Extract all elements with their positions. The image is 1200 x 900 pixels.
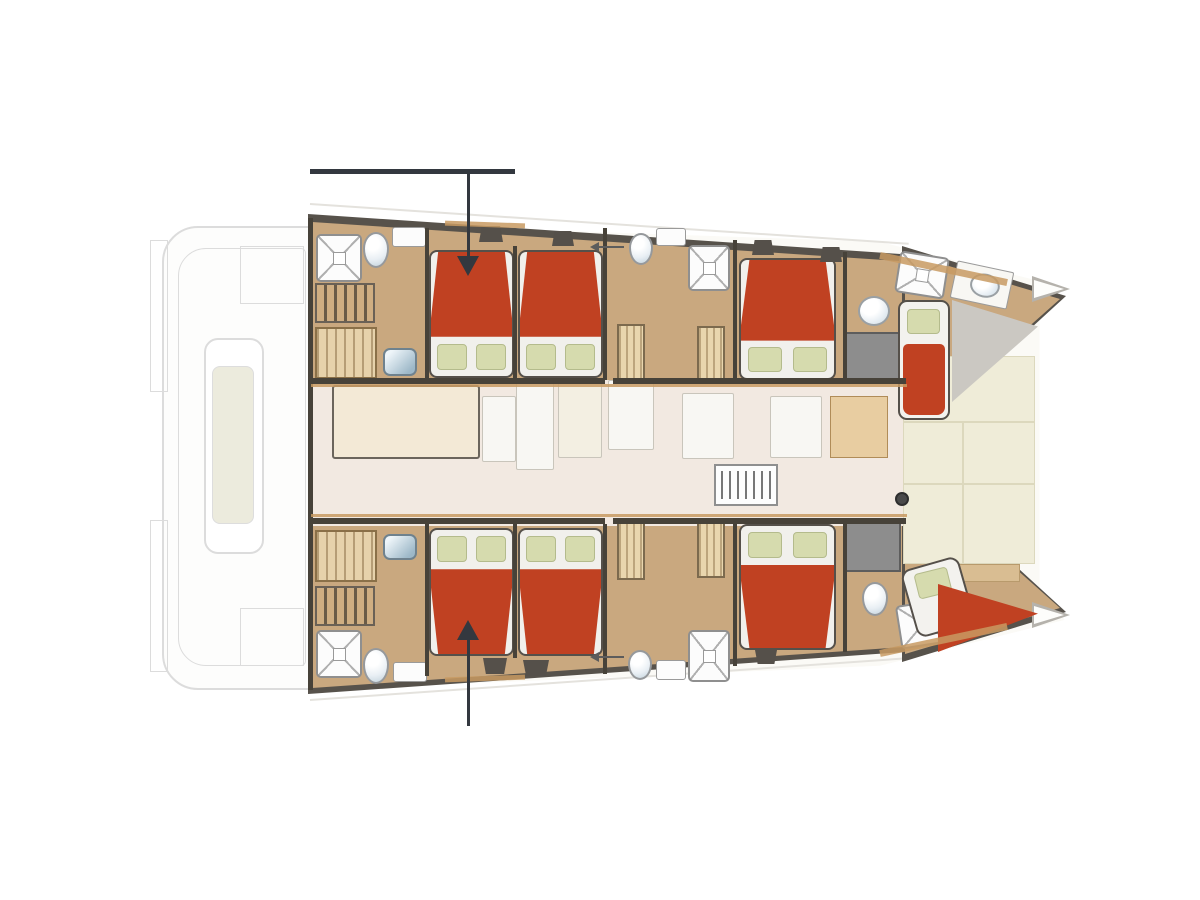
pillow-icon	[748, 347, 781, 372]
pillow-icon	[565, 344, 594, 370]
washbasin-icon	[383, 348, 417, 376]
pillow-icon	[526, 344, 555, 370]
deck-hatch-icon	[752, 240, 774, 255]
double-bed	[739, 524, 836, 650]
salon-bulkhead	[311, 518, 605, 524]
wardrobe-icon	[315, 327, 377, 379]
callout-arrow-up-head	[457, 620, 479, 640]
pillow-icon	[907, 309, 941, 335]
foredeck-step	[956, 564, 1020, 582]
pillow-icon	[793, 532, 826, 558]
galley-cabinet	[830, 396, 888, 458]
callout-reference-line	[310, 169, 515, 174]
cabin-partition	[733, 524, 737, 666]
cabin-partition	[843, 524, 847, 652]
callout-arrow-down-shaft	[467, 172, 470, 260]
door-arrow-icon	[598, 656, 624, 658]
mast-step	[895, 492, 909, 506]
cockpit-locker-starboard	[240, 608, 304, 666]
salon-sofa	[482, 396, 516, 462]
salon-bulkhead	[613, 518, 906, 524]
bed-duvet-icon	[739, 565, 836, 650]
aft-bulkhead	[308, 218, 313, 690]
cabin-partition	[733, 240, 737, 380]
deck-hatch-icon	[552, 231, 574, 246]
foredeck-panel-line	[904, 483, 1034, 485]
pillow-icon	[437, 536, 466, 562]
vanity-shelf	[656, 228, 686, 246]
double-bed	[739, 258, 836, 380]
wood-trim	[311, 514, 907, 517]
pillow-icon	[476, 344, 505, 370]
wood-trim	[311, 384, 907, 387]
cockpit-locker-port	[240, 246, 304, 304]
shower-icon	[688, 630, 730, 682]
storage-locker	[845, 520, 901, 572]
deck-hatch-icon	[483, 658, 507, 674]
galley-counter	[682, 393, 734, 459]
cabin-partition	[513, 524, 517, 658]
hanging-locker	[697, 520, 725, 578]
door-arrow-icon	[598, 246, 624, 248]
bed-duvet-icon	[518, 569, 603, 656]
shower-icon	[316, 630, 362, 678]
vanity-shelf	[393, 662, 427, 682]
cabin-partition	[425, 524, 429, 676]
deck-hatch-icon	[755, 650, 777, 664]
cabin-partition	[513, 246, 517, 380]
galley-counter	[770, 396, 822, 458]
vanity-shelf	[656, 660, 686, 680]
washbasin-icon	[858, 296, 890, 326]
pillow-icon	[476, 536, 505, 562]
pillow-icon	[565, 536, 594, 562]
single-berth	[898, 300, 950, 420]
deck-hatch-icon	[523, 660, 549, 676]
bed-duvet-icon	[518, 250, 603, 337]
catamaran-floor-plan	[0, 0, 1200, 900]
cabin-partition	[603, 524, 607, 674]
transom-step-starboard	[150, 520, 168, 672]
pillow-icon	[437, 344, 466, 370]
shower-icon	[316, 234, 362, 282]
hanging-locker	[697, 326, 725, 384]
cabin-partition	[843, 252, 847, 380]
foredeck-panel-line	[962, 421, 964, 565]
cockpit-bench-seat	[212, 366, 254, 524]
hanging-locker	[617, 324, 645, 382]
cabin-partition	[603, 228, 607, 380]
wardrobe-icon	[315, 530, 377, 582]
washbasin-icon	[383, 534, 417, 560]
double-bed	[518, 250, 603, 378]
nav-station-counter	[608, 380, 654, 450]
storage-locker	[845, 332, 901, 382]
salon-bulkhead	[311, 378, 605, 384]
bed-duvet-icon	[739, 258, 836, 341]
salon-table	[332, 385, 480, 459]
callout-arrow-up-shaft	[467, 640, 470, 726]
companionway-stairs	[315, 283, 375, 323]
cabin-partition	[425, 228, 429, 380]
salon-sofa	[516, 380, 554, 470]
deck-hatch-icon	[479, 226, 503, 242]
companionway-stairs	[315, 586, 375, 626]
double-bed	[518, 528, 603, 656]
pillow-icon	[748, 532, 781, 558]
pillow-icon	[793, 347, 826, 372]
hanging-locker	[617, 522, 645, 580]
bed-duvet-icon	[903, 344, 945, 415]
pillow-icon	[526, 536, 555, 562]
deck-hatch-icon	[820, 247, 842, 262]
salon-lounge	[558, 382, 602, 458]
vanity-shelf	[392, 227, 426, 247]
foredeck-panel-line	[904, 421, 1034, 423]
bed-duvet-icon	[429, 569, 514, 656]
galley-stove-icon	[714, 464, 778, 506]
callout-arrow-down-head	[457, 256, 479, 276]
salon-bulkhead	[613, 378, 906, 384]
shower-icon	[688, 245, 730, 291]
transom-step-port	[150, 240, 168, 392]
